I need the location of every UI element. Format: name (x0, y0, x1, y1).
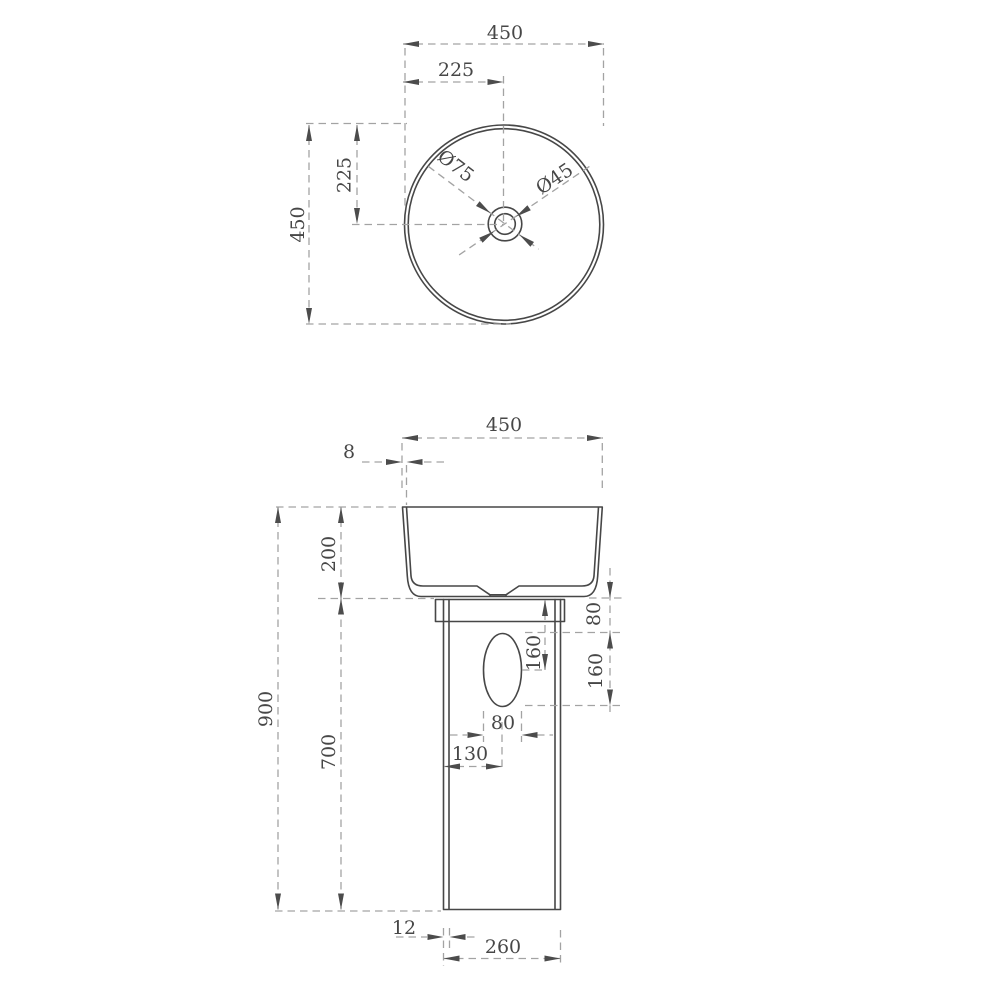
rim-thickness-dimension-label: 8 (343, 441, 355, 463)
plan-halfwidth-dimension-label: 225 (438, 59, 474, 81)
plan-width-dimension-label: 450 (487, 22, 523, 44)
slot-center-offset-dimension-label: 160 (523, 635, 545, 671)
arrowheads-slot-offset-80 (607, 582, 613, 598)
drawing-canvas: 450 225 450 225 Ø75 Ø45 450 (0, 0, 1000, 1000)
front-width-dimension-label: 450 (486, 414, 522, 436)
slot-center-x-dimension-label: 130 (452, 743, 488, 765)
slot-offset-dimension-label: 80 (583, 602, 605, 626)
basin-front-outline (403, 507, 603, 597)
arrowheads-wall-thickness-12 (428, 934, 466, 940)
plan-height-dimension-label: 450 (287, 206, 309, 242)
overall-height-dimension-label: 900 (255, 691, 277, 727)
plan-halfheight-dimension-label: 225 (334, 157, 356, 193)
basin-height-dimension-label: 200 (318, 536, 340, 572)
front-view: 450 8 200 900 700 80 160 160 80 130 12 2… (255, 414, 622, 966)
technical-drawing-page: 450 225 450 225 Ø75 Ø45 450 (0, 0, 1000, 1000)
drain-inner-diameter-label: Ø45 (532, 159, 577, 199)
slot-height-dimension-label: 160 (585, 653, 607, 689)
drain-outer-diameter-label: Ø75 (433, 145, 478, 187)
slot-width-dimension-label: 80 (491, 712, 515, 734)
pedestal-base-width-dimension-label: 260 (485, 936, 521, 958)
pedestal-height-dimension-label: 700 (318, 734, 340, 770)
overflow-slot-outline (484, 634, 522, 707)
arrowheads-rim-thickness-8 (386, 459, 423, 465)
plan-view: 450 225 450 225 Ø75 Ø45 (287, 22, 604, 324)
pedestal-wall-dimension-label: 12 (392, 917, 416, 939)
